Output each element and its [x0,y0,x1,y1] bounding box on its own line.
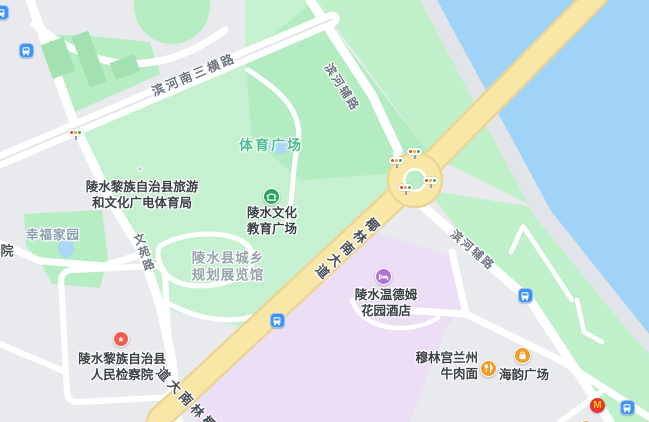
bus-stop-icon[interactable] [270,313,285,328]
restaurant-icon[interactable] [480,360,497,377]
traffic-light-icon [389,157,404,169]
bus-stop-icon[interactable] [19,43,34,58]
traffic-light-icon [407,148,422,160]
map-canvas[interactable]: 滨河南三横路 滨河辅路 滨河辅路 文苑路 椰林南大道 椰林南大道 体育广场 陵水… [0,0,649,422]
traffic-light-icon [398,184,413,196]
traffic-light-icon [423,177,438,189]
traffic-light-icon [68,129,83,141]
pavilion-icon[interactable] [263,188,280,205]
bus-stop-icon[interactable] [620,400,635,415]
mcdonalds-icon[interactable]: M [590,398,605,413]
bus-stop-icon[interactable] [0,5,9,20]
hotel-bed-icon[interactable] [375,268,392,285]
map-base-layer [0,0,649,422]
minor-poi-dot-icon [137,166,143,172]
bus-stop-icon[interactable] [518,288,533,303]
shopping-bag-icon[interactable] [514,347,531,364]
park-pond [269,138,291,154]
xingfu-pond [58,238,74,258]
star-poi-icon[interactable]: ★ [113,331,129,347]
